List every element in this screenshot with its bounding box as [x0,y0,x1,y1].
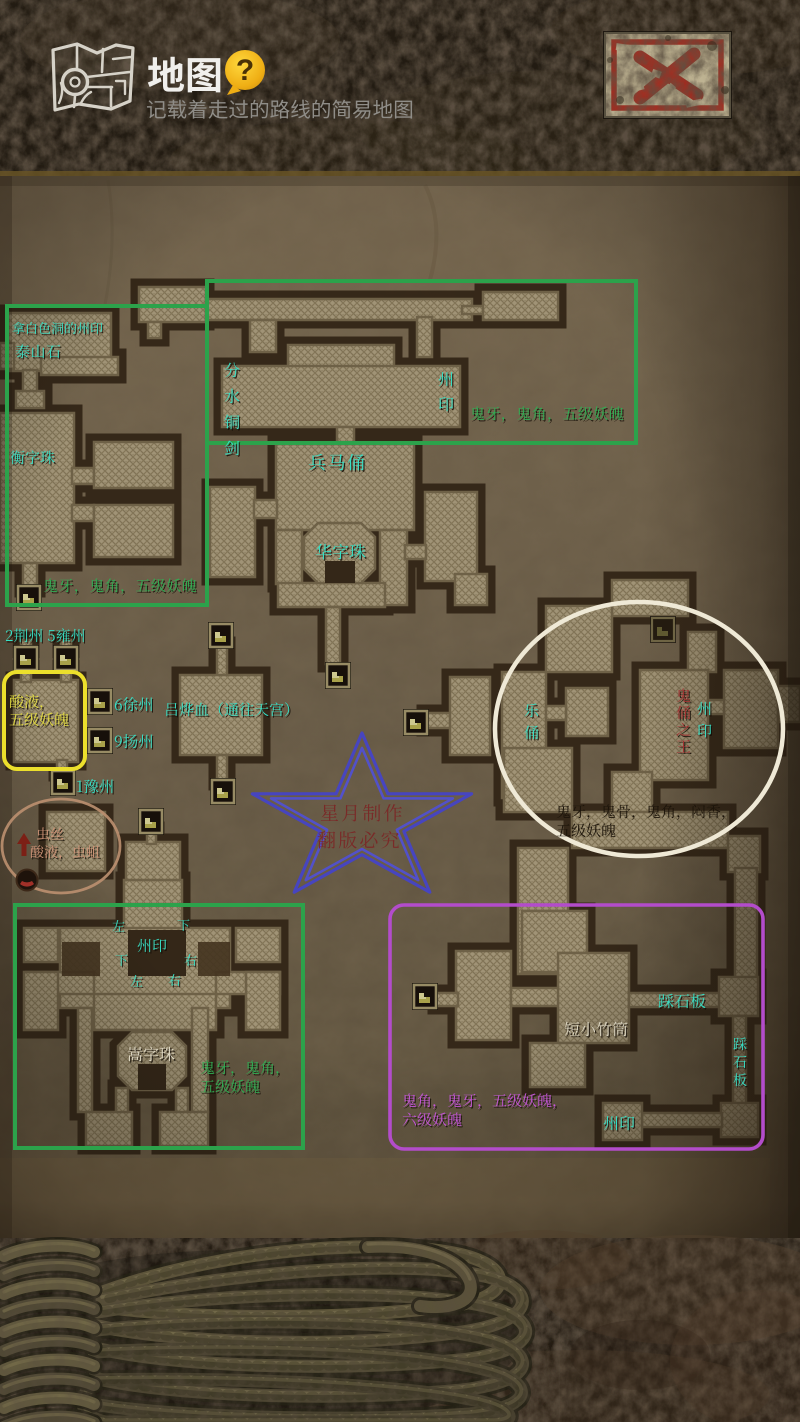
svg-text:?: ? [236,54,254,87]
